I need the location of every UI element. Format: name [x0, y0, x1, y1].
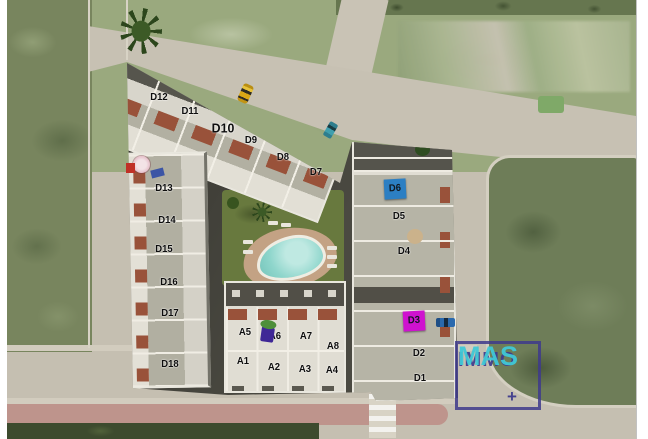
white-border-left [0, 0, 7, 439]
unit-label-d17[interactable]: D17 [161, 309, 178, 319]
unit-label-d10[interactable]: D10 [212, 122, 235, 135]
unit-label-d3[interactable]: D3 [403, 310, 426, 331]
unit-label-d11[interactable]: D11 [182, 107, 199, 117]
unit-label-d5[interactable]: D5 [393, 212, 405, 222]
unit-label-d9[interactable]: D9 [245, 136, 257, 146]
immomas-logo: IMMO MAS + [455, 341, 541, 410]
unit-label-a3[interactable]: A3 [299, 365, 311, 375]
unit-label-d18[interactable]: D18 [161, 360, 178, 370]
unit-label-a1[interactable]: A1 [237, 357, 249, 367]
unit-label-d6[interactable]: D6 [384, 178, 407, 199]
unit-label-d8[interactable]: D8 [277, 153, 289, 163]
unit-label-a2[interactable]: A2 [268, 363, 280, 373]
logo-plus-icon: + [507, 387, 517, 407]
unit-label-a5[interactable]: A5 [239, 328, 251, 338]
potted-plant [260, 326, 275, 343]
unit-label-a8[interactable]: A8 [327, 342, 339, 352]
unit-label-a7[interactable]: A7 [300, 332, 312, 342]
unit-label-d1[interactable]: D1 [414, 374, 426, 384]
unit-label-d16[interactable]: D16 [160, 278, 177, 288]
unit-label-d2[interactable]: D2 [413, 349, 425, 359]
site-plan-image: D12D11D10D9D8D7D13D14D15D16D17D18D6D5D4D… [0, 0, 648, 439]
unit-label-d13[interactable]: D13 [155, 184, 172, 194]
unit-label-a4[interactable]: A4 [326, 366, 338, 376]
unit-label-d7[interactable]: D7 [310, 168, 322, 178]
logo-line-mas: MAS [458, 341, 518, 372]
unit-label-d14[interactable]: D14 [158, 216, 175, 226]
unit-label-d4[interactable]: D4 [398, 247, 410, 257]
unit-label-d15[interactable]: D15 [155, 245, 172, 255]
unit-label-d12[interactable]: D12 [150, 93, 167, 103]
unit-labels-layer: D12D11D10D9D8D7D13D14D15D16D17D18D6D5D4D… [0, 0, 648, 439]
white-border-right [636, 0, 648, 439]
